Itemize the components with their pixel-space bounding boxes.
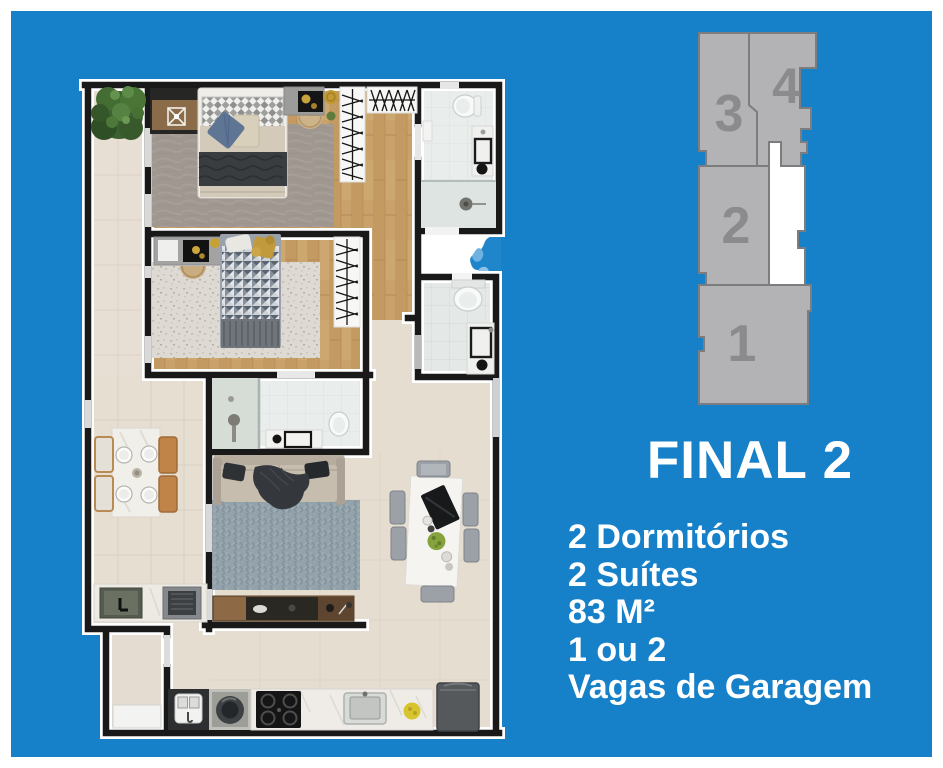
svg-text:2 Suítes: 2 Suítes <box>568 556 698 594</box>
svg-text:2: 2 <box>722 197 751 255</box>
svg-text:1 ou 2: 1 ou 2 <box>568 631 666 669</box>
svg-text:3: 3 <box>715 85 744 143</box>
svg-text:1: 1 <box>728 315 757 373</box>
svg-text:2 Dormitórios: 2 Dormitórios <box>568 518 789 556</box>
svg-text:Vagas de Garagem: Vagas de Garagem <box>568 668 872 706</box>
svg-text:83 M²: 83 M² <box>568 593 655 631</box>
svg-text:4: 4 <box>772 58 800 114</box>
svg-text:FINAL 2: FINAL 2 <box>647 431 853 490</box>
